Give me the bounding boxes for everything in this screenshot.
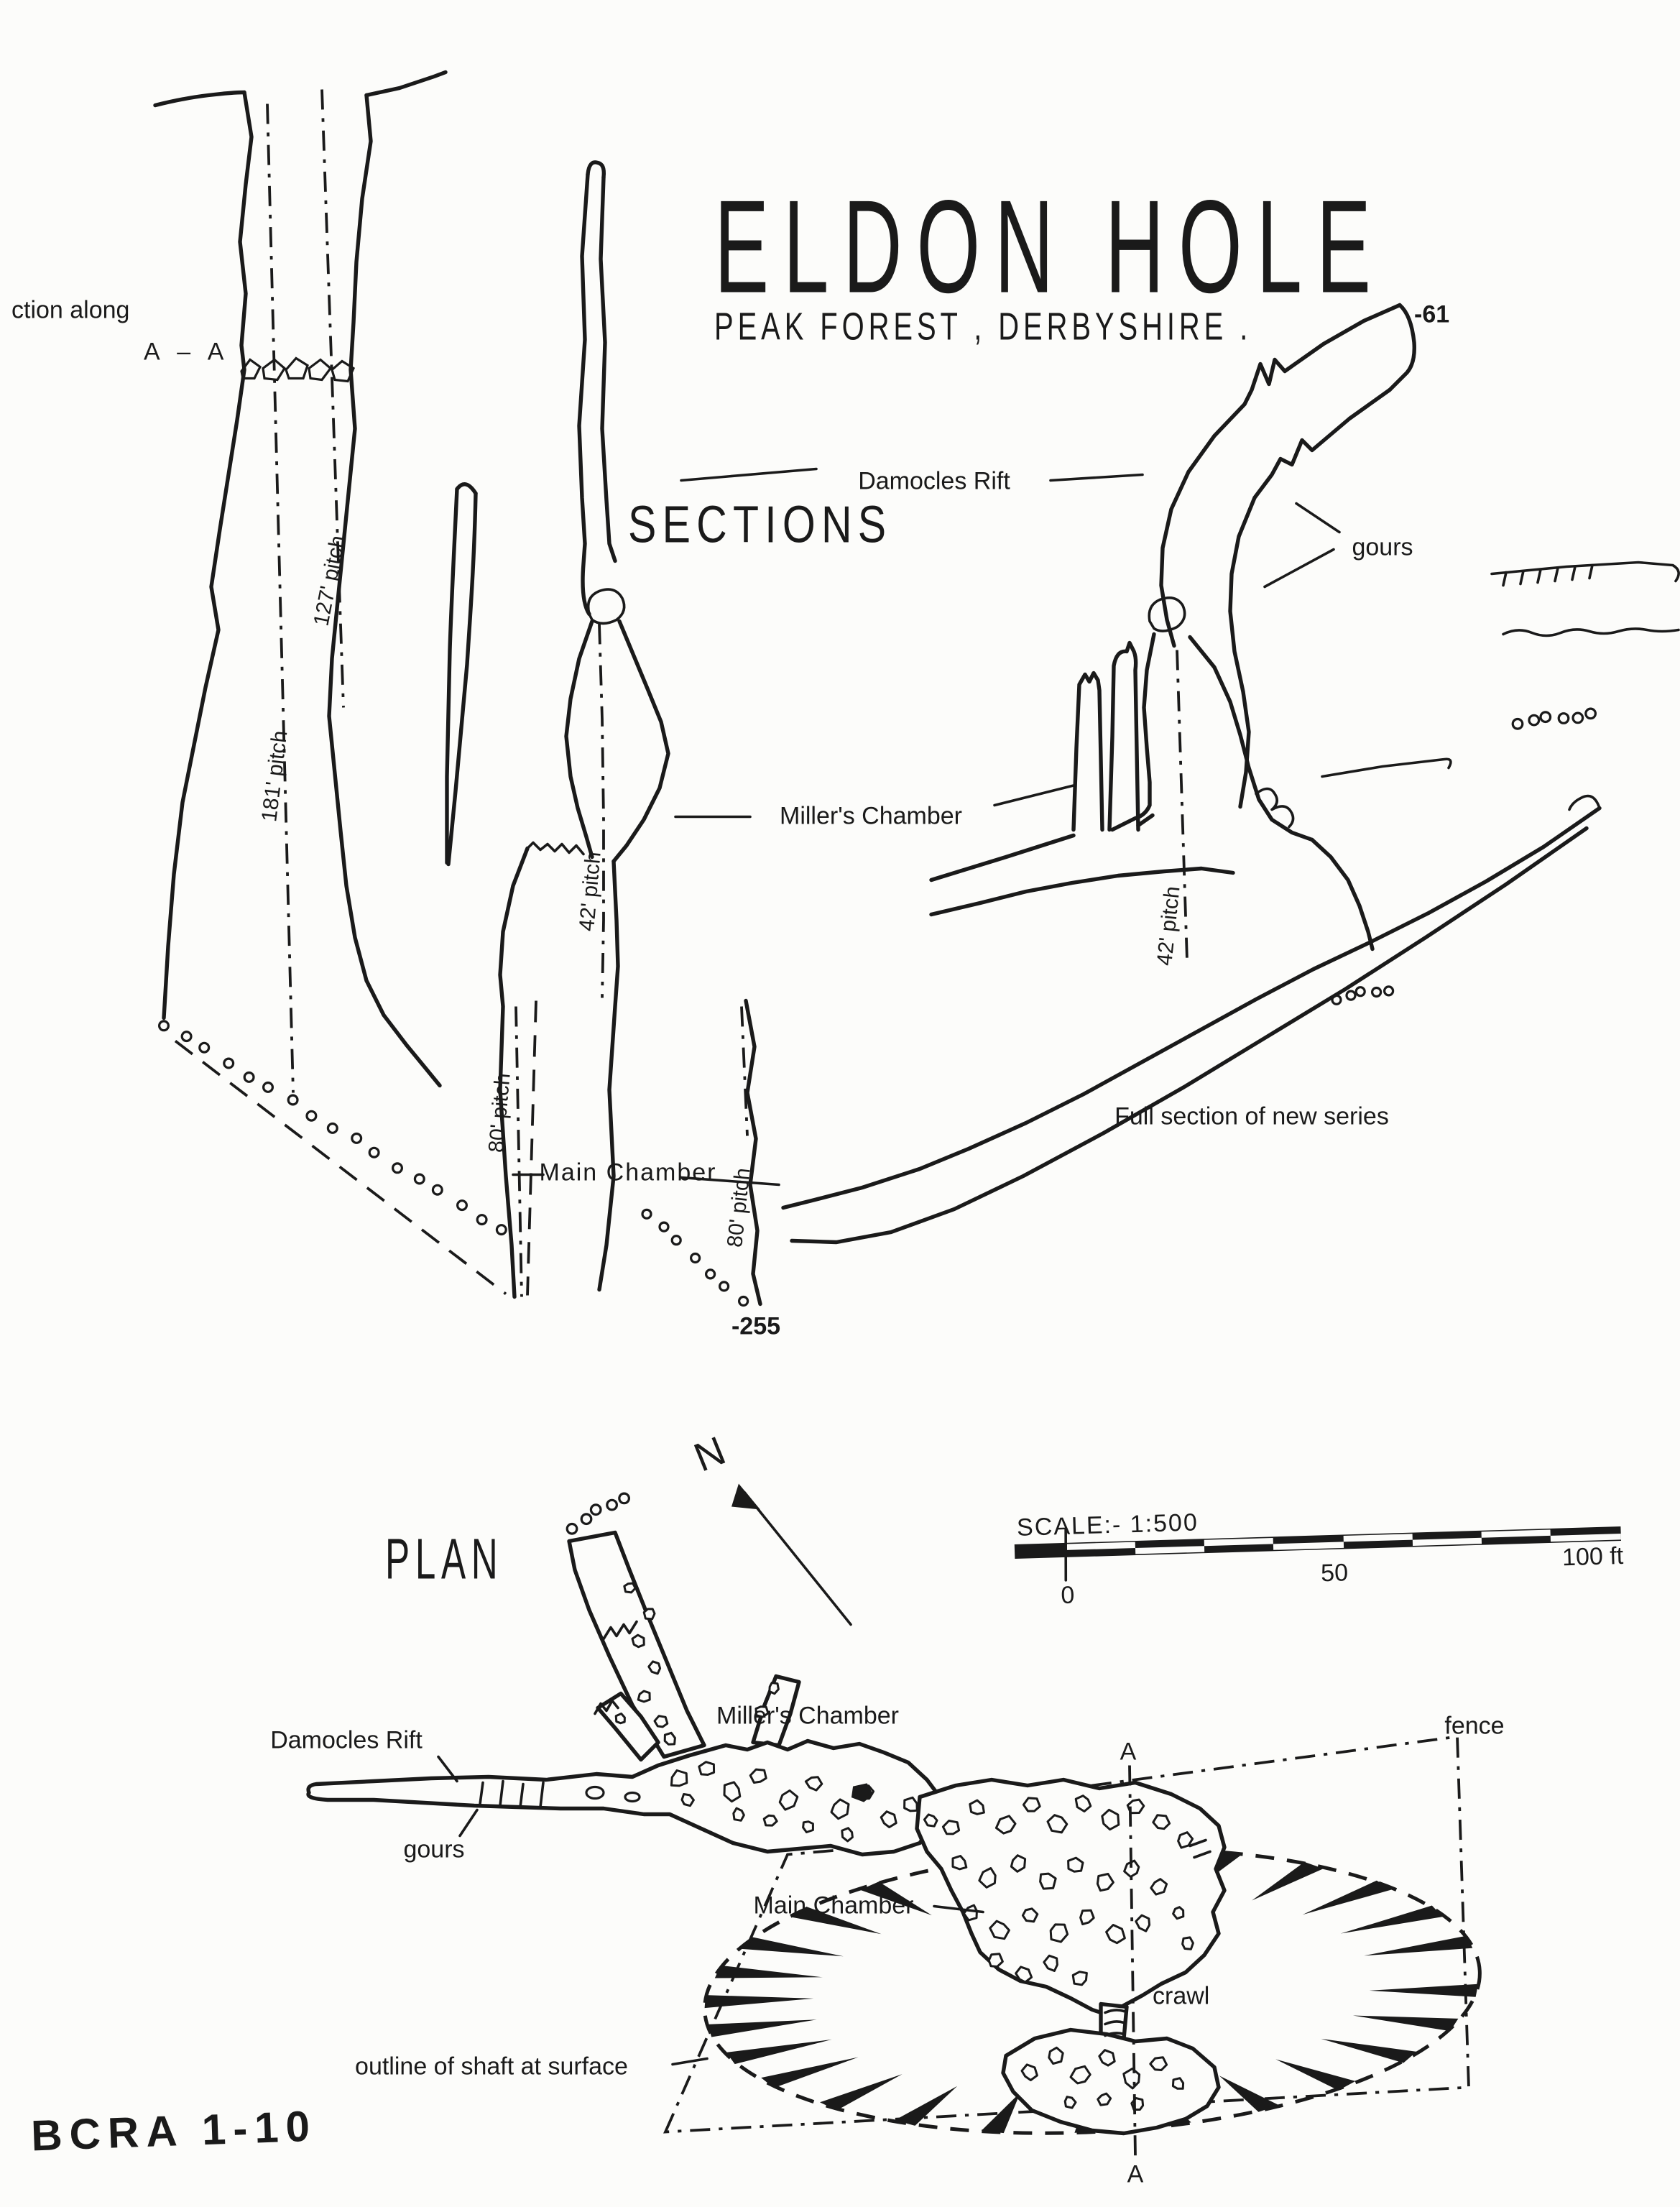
survey-sheet: ELDON HOLE PEAK FOREST , DERBYSHIRE . SE… [0, 0, 1680, 2207]
damocles-leader-east [1051, 475, 1143, 481]
pitch-80-left-label: 80' pitch [484, 1072, 515, 1153]
millers-leader-east [994, 785, 1075, 806]
rock-spire-1 [1074, 673, 1102, 830]
plan-view: PLAN N SCALE:- 1:500 0 50 100 [270, 1427, 1625, 2188]
damocles-tube-upper-wall [1161, 305, 1400, 646]
millers-callout: Miller's Chamber [675, 785, 1075, 830]
scale-tick-0: 0 [1061, 1582, 1075, 1610]
damocles-callout: Damocles Rift [681, 468, 1143, 495]
plan-main-chamber-label: Main Chamber [754, 1892, 914, 1920]
ledge-line-upper-right [1322, 759, 1451, 776]
pitch-line-42-mid [599, 625, 604, 998]
mid-rift-west-wall [579, 175, 589, 614]
plan-passages [308, 1533, 1224, 2134]
gours-label: gours [1352, 534, 1413, 561]
millers-chamber-west-wall [566, 622, 592, 857]
aa-bottom-label: A [1127, 2161, 1144, 2188]
left-shaft-east-wall [329, 96, 440, 1086]
left-section: ction along A – A 181' pitch 127' pitch [11, 73, 506, 1294]
section-aa-label: A – A [144, 338, 229, 366]
title-block: ELDON HOLE PEAK FOREST , DERBYSHIRE . [714, 173, 1385, 349]
boulder-slope-chain-left [160, 1021, 507, 1235]
pitch42-west-wall [1112, 635, 1154, 830]
full-section-label: Full section of new series [1114, 1103, 1389, 1130]
shaft-outline-leader [673, 2059, 707, 2065]
surface-wavy-line [1503, 629, 1679, 636]
pitch-42-mid-label: 42' pitch [575, 851, 606, 932]
main-chamber-label: Main Chamber [540, 1159, 717, 1187]
millers-chamber-east-wall [614, 622, 668, 862]
dashed-line-80-left [527, 1001, 536, 1296]
floor-dashed-line-left [175, 1041, 506, 1294]
mid-rift-top-curl [588, 162, 604, 178]
page-title: ELDON HOLE [714, 173, 1385, 321]
plan-gours-leader [460, 1810, 477, 1836]
section-along-label: ction along [11, 297, 129, 324]
mid-rift-east-wall [601, 178, 615, 561]
cave-survey-drawing: ELDON HOLE PEAK FOREST , DERBYSHIRE . SE… [0, 0, 1680, 2207]
pitch-80-right-label: 80' pitch [723, 1167, 754, 1249]
damocles-tube-lower-wall [1230, 390, 1390, 807]
gour-circle-row [1513, 709, 1595, 729]
millers-level-floor [931, 869, 1233, 915]
scale-tick-100: 100 ft [1562, 1542, 1625, 1572]
fence-label: fence [1444, 1713, 1504, 1740]
mid-jammed-boulder-loop [589, 589, 624, 623]
pitch-line-181 [267, 104, 293, 1093]
slope-circle-row [1332, 987, 1393, 1004]
pitch42-east-wall [1190, 637, 1312, 840]
plan-millers-label: Miller's Chamber [716, 1703, 899, 1730]
boulder-choke-band [241, 359, 354, 382]
damocles-leader-west [681, 469, 816, 481]
damocles-tube-top-end [1390, 305, 1414, 390]
north-arrow-head [731, 1484, 760, 1510]
plan-crawl-label: crawl [1153, 1983, 1209, 2010]
surface-gour-lines [1492, 563, 1679, 729]
credit-label: BCRA 1-10 [30, 2102, 318, 2160]
pitch-line-80-left [516, 1007, 522, 1297]
shaft-outline-label: outline of shaft at surface [355, 2053, 628, 2081]
page-subtitle: PEAK FOREST , DERBYSHIRE . [714, 305, 1252, 349]
gours-leader-lower [1265, 550, 1334, 587]
gours-leader-upper [1296, 504, 1339, 533]
scale-label: SCALE:- 1:500 [1017, 1508, 1199, 1541]
slope-start-curl [1569, 796, 1600, 810]
pitch-line-80-right [742, 1007, 747, 1136]
millers-level-roof [931, 836, 1074, 880]
main-chamber-plan [917, 1780, 1224, 2016]
left-shaft-surface-east [366, 73, 446, 96]
north-letter: N [688, 1427, 731, 1480]
south-chamber-plan [1003, 2030, 1219, 2134]
depth-61-label: -61 [1414, 301, 1449, 328]
pitch-127-label: 127' pitch [309, 533, 350, 627]
plan-damocles-label: Damocles Rift [270, 1727, 423, 1754]
terminal-pit-east-wall [746, 1001, 760, 1304]
gours-callout: gours [1265, 504, 1413, 587]
damocles-rift-label: Damocles Rift [858, 468, 1010, 495]
sections-heading: SECTIONS [628, 495, 892, 553]
gour-tick-line [1492, 563, 1679, 581]
north-arrow: N [688, 1427, 851, 1624]
middle-section: 42' pitch 80' pitch [484, 162, 668, 1297]
rock-spire-2 [1109, 643, 1138, 830]
scale-bar: SCALE:- 1:500 0 50 100 ft [1014, 1496, 1625, 1611]
pitch-42-right-label: 42' pitch [1153, 885, 1184, 967]
arm1-circle-chain [567, 1493, 629, 1534]
plan-gours-label: gours [403, 1836, 464, 1863]
sliver-top-arc [457, 484, 476, 494]
scale-tick-50: 50 [1321, 1559, 1349, 1587]
plan-heading: PLAN [385, 1527, 503, 1591]
middle-sliver-rift [447, 484, 476, 865]
gour-squiggle-ledge [527, 843, 583, 854]
depth-255-label: -255 [731, 1313, 780, 1340]
millers-chamber-label: Miller's Chamber [780, 803, 962, 830]
left-shaft-west-wall [164, 93, 251, 1018]
left-shaft-surface-west [155, 93, 244, 106]
north-arrow-shaft [744, 1493, 851, 1625]
mid-lower-east-wall [599, 862, 618, 1290]
aa-top-label: A [1120, 1738, 1137, 1766]
brink-drop-wall [1312, 840, 1372, 949]
